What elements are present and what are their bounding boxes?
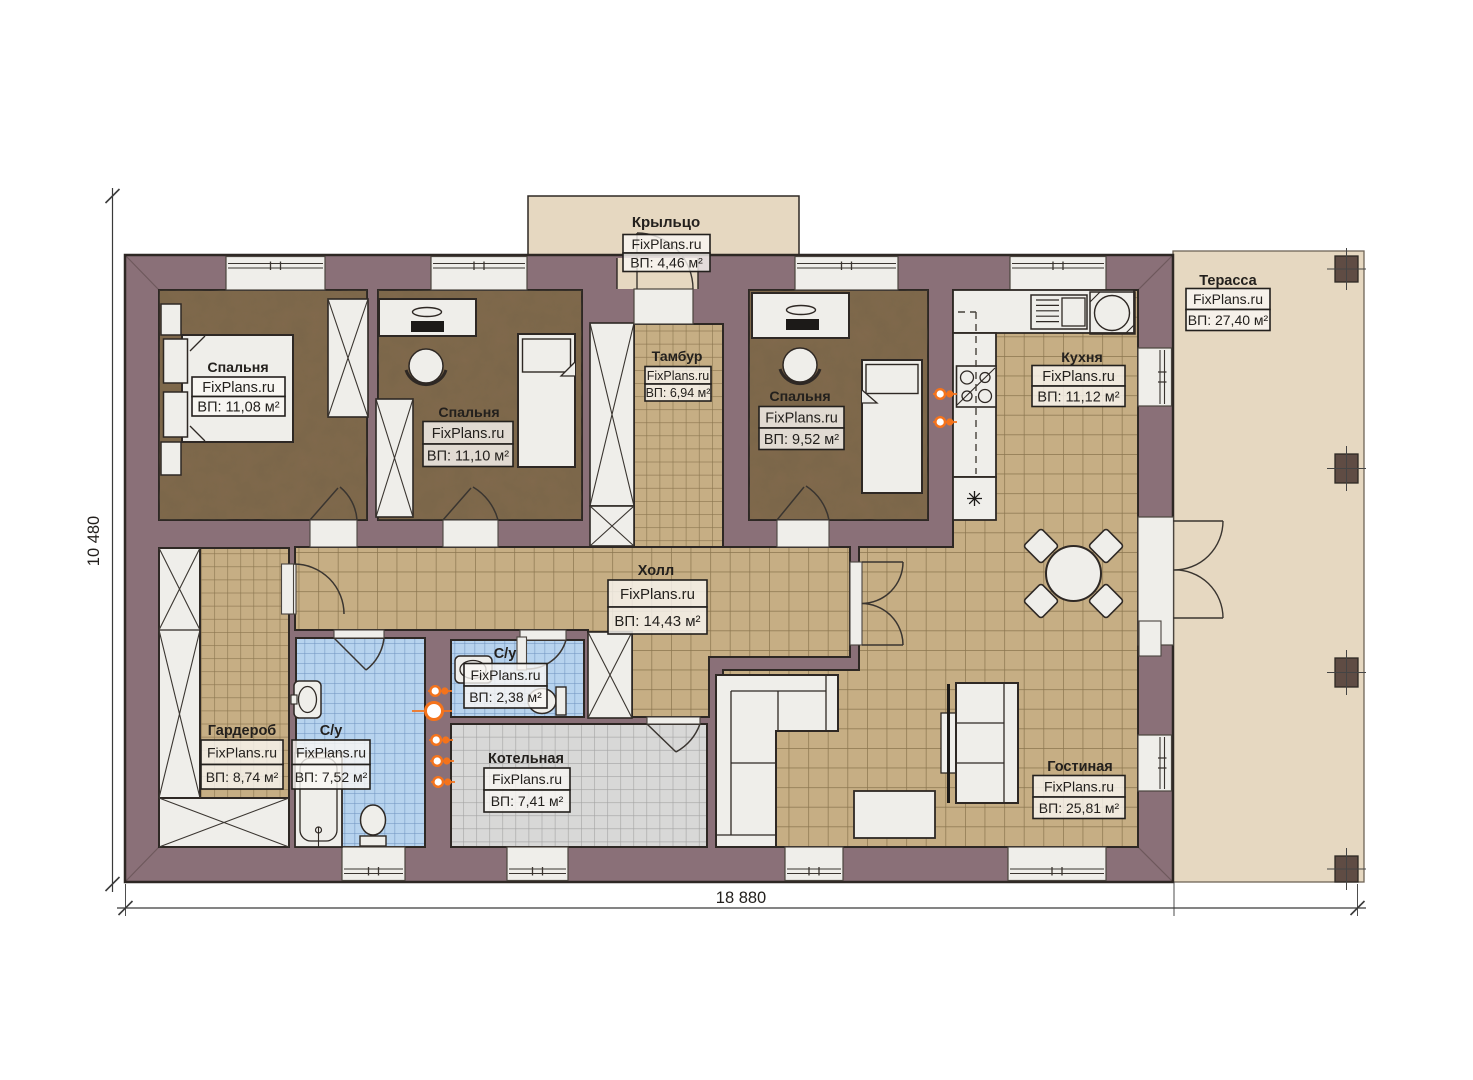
- svg-text:С/у: С/у: [320, 723, 343, 739]
- svg-text:FixPlans.ru: FixPlans.ru: [631, 236, 701, 252]
- svg-text:Спальня: Спальня: [438, 405, 499, 421]
- svg-text:ВП: 11,08 м²: ВП: 11,08 м²: [197, 400, 279, 416]
- svg-text:FixPlans.ru: FixPlans.ru: [765, 411, 838, 427]
- svg-text:FixPlans.ru: FixPlans.ru: [432, 426, 505, 442]
- svg-text:FixPlans.ru: FixPlans.ru: [470, 667, 540, 683]
- svg-text:FixPlans.ru: FixPlans.ru: [202, 380, 275, 396]
- svg-text:Холл: Холл: [638, 563, 674, 579]
- svg-text:FixPlans.ru: FixPlans.ru: [1044, 778, 1114, 794]
- svg-text:FixPlans.ru: FixPlans.ru: [296, 744, 366, 760]
- svg-text:ВП: 11,10 м²: ВП: 11,10 м²: [427, 449, 509, 465]
- svg-text:FixPlans.ru: FixPlans.ru: [647, 369, 710, 383]
- svg-text:ВП: 4,46 м²: ВП: 4,46 м²: [630, 254, 703, 270]
- svg-text:10 480: 10 480: [85, 516, 103, 566]
- svg-text:ВП: 11,12 м²: ВП: 11,12 м²: [1037, 390, 1119, 406]
- svg-text:ВП: 7,52 м²: ВП: 7,52 м²: [295, 769, 368, 785]
- svg-text:Гардероб: Гардероб: [208, 723, 277, 739]
- svg-text:ВП: 14,43 м²: ВП: 14,43 м²: [614, 613, 700, 630]
- svg-text:Спальня: Спальня: [207, 360, 268, 376]
- svg-text:ВП: 8,74 м²: ВП: 8,74 м²: [206, 769, 279, 785]
- svg-text:С/у: С/у: [494, 646, 517, 662]
- svg-text:ВП: 27,40 м²: ВП: 27,40 м²: [1188, 312, 1269, 328]
- svg-text:Тамбур: Тамбур: [652, 348, 703, 364]
- svg-text:ВП: 2,38 м²: ВП: 2,38 м²: [469, 689, 542, 705]
- svg-text:ВП: 25,81 м²: ВП: 25,81 м²: [1039, 800, 1120, 816]
- svg-text:FixPlans.ru: FixPlans.ru: [207, 744, 277, 760]
- svg-text:ВП: 9,52 м²: ВП: 9,52 м²: [764, 432, 839, 448]
- svg-text:18 880: 18 880: [716, 889, 766, 907]
- svg-text:Гостиная: Гостиная: [1047, 759, 1113, 775]
- svg-text:ВП: 7,41 м²: ВП: 7,41 м²: [491, 793, 564, 809]
- svg-text:Спальня: Спальня: [769, 389, 830, 405]
- svg-text:FixPlans.ru: FixPlans.ru: [620, 586, 695, 603]
- svg-text:FixPlans.ru: FixPlans.ru: [492, 771, 562, 787]
- svg-text:FixPlans.ru: FixPlans.ru: [1193, 291, 1263, 307]
- svg-text:Котельная: Котельная: [488, 751, 564, 767]
- svg-text:FixPlans.ru: FixPlans.ru: [1042, 369, 1115, 385]
- svg-text:Крыльцо: Крыльцо: [632, 214, 700, 231]
- svg-text:ВП: 6,94 м²: ВП: 6,94 м²: [646, 386, 711, 400]
- svg-text:Терасса: Терасса: [1199, 273, 1257, 289]
- svg-text:Кухня: Кухня: [1061, 350, 1102, 366]
